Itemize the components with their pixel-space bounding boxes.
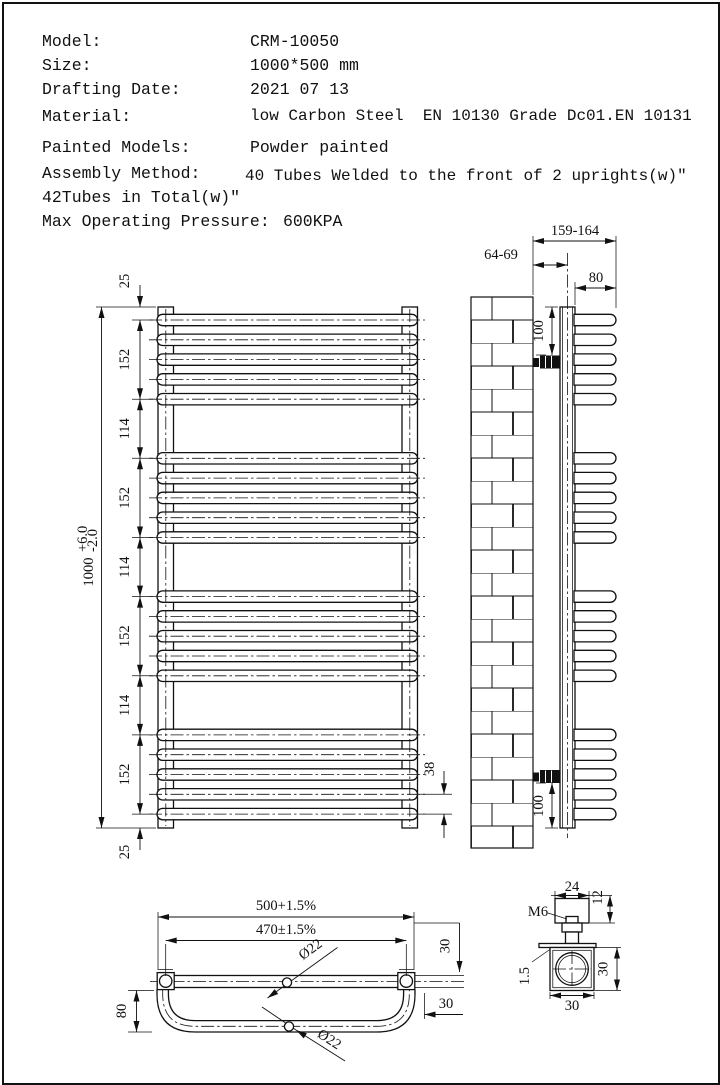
wall-bracket-bottom [533, 770, 560, 783]
side-tubes [574, 314, 616, 820]
dim-bracket-top: 100 [531, 320, 547, 342]
dim-seg4: 114 [117, 556, 133, 578]
dim-v-offset: 30 [438, 939, 454, 954]
thread-label: M6 [528, 904, 548, 920]
dim-seg3: 152 [117, 487, 133, 509]
dim-depth: 80 [114, 1004, 130, 1019]
front-view: 25 152 114 152 114 152 114 152 25 1000 +… [75, 274, 452, 860]
dia-marker-bottom [284, 1022, 293, 1031]
dia-marker-top [282, 978, 291, 987]
technical-drawing-page: Model: CRM-10050 Size: 1000*500 mm Draft… [0, 0, 720, 1085]
dim-width-top: 24 [565, 879, 580, 895]
dim-height: 30 [596, 962, 612, 977]
dim-overall-depth: 159-164 [551, 223, 600, 239]
wall-section [471, 297, 533, 848]
dim-overall-height: 1000 +6.0 -2.0 [75, 526, 101, 587]
dim-width-bottom: 30 [565, 998, 580, 1014]
detail-square-tube [550, 948, 594, 991]
wall-bracket-top [533, 356, 560, 369]
detail-view: 24 12 M6 1.5 30 30 [517, 879, 621, 1014]
drawing-canvas: 25 152 114 152 114 152 114 152 25 1000 +… [0, 0, 720, 1085]
dim-overall-value: 1000 [81, 558, 97, 587]
dim-seg5: 152 [117, 625, 133, 647]
dim-bracket-bottom: 100 [531, 795, 547, 817]
dim-h-offset: 30 [439, 996, 454, 1012]
dim-top-offset: 25 [117, 274, 133, 289]
dim-seg7: 152 [117, 764, 133, 786]
front-tubes [157, 314, 418, 820]
dim-seg6: 114 [117, 694, 133, 716]
dim-seg1: 152 [117, 349, 133, 371]
dim-cap-height: 12 [590, 890, 606, 905]
dim-wall-thickness: 1.5 [517, 967, 533, 985]
dim-dia-bottom: Ø22 [314, 1026, 344, 1053]
dim-width: 500+1.5% [256, 898, 316, 914]
dim-wall-to-center: 64-69 [484, 247, 518, 263]
dim-overall-tol-minus: -2.0 [85, 529, 101, 552]
dim-centers: 470±1.5% [256, 922, 316, 938]
dim-seg2: 114 [117, 417, 133, 439]
dim-tube-pitch: 38 [422, 762, 438, 777]
bottom-view: 500+1.5% 470±1.5% 80 30 30 Ø22 [114, 898, 464, 1061]
dim-bottom-offset: 25 [117, 845, 133, 860]
dim-tube-depth: 80 [589, 270, 604, 286]
